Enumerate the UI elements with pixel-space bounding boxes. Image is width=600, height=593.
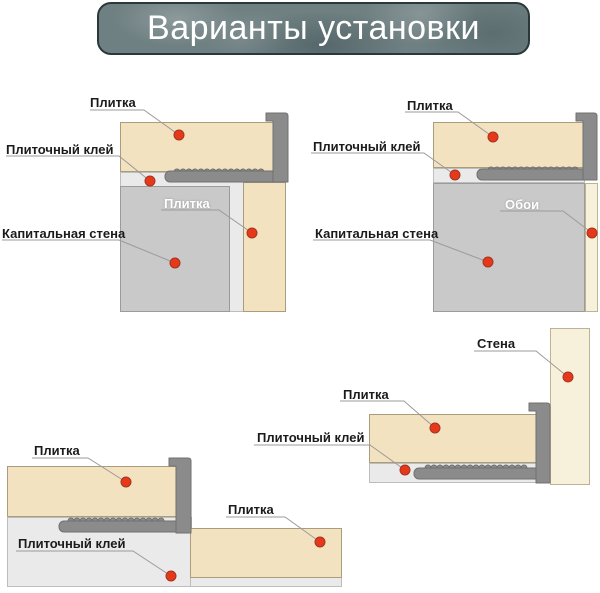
d4-wall-layer bbox=[550, 328, 590, 485]
d1-label-wall: Капитальная стена bbox=[2, 226, 125, 241]
d4-label-tile: Плитка bbox=[343, 387, 389, 402]
d4-trim-profile bbox=[413, 402, 551, 484]
d3-trim-profile bbox=[58, 457, 193, 534]
d2-label-adhesive: Плиточный клей bbox=[313, 139, 421, 154]
d1-trim-profile bbox=[164, 112, 290, 184]
d4-label-adhesive: Плиточный клей bbox=[257, 430, 365, 445]
page-title: Варианты установки bbox=[147, 9, 480, 48]
title-banner: Варианты установки bbox=[97, 2, 530, 55]
d3-right-tile-layer bbox=[190, 528, 342, 578]
d1-profile-base bbox=[165, 171, 287, 182]
d2-label-wall: Капитальная стена bbox=[315, 226, 438, 241]
d4-label-wall: Стена bbox=[477, 336, 515, 351]
d2-label-wallpaper: Обои bbox=[505, 197, 539, 212]
d4-profile-base bbox=[414, 468, 549, 479]
d3-label-tile-right: Плитка bbox=[228, 502, 274, 517]
d3-label-adhesive: Плиточный клей bbox=[18, 536, 126, 551]
d1-label-adhesive: Плиточный клей bbox=[6, 142, 114, 157]
d2-label-tile-top: Плитка bbox=[407, 98, 453, 113]
d1-label-tile-side: Плитка bbox=[164, 196, 210, 211]
d2-profile-base bbox=[477, 169, 597, 180]
d3-label-tile-top: Плитка bbox=[34, 443, 80, 458]
installation-options-diagram: Варианты установки bbox=[0, 0, 600, 593]
d1-side-tile-layer bbox=[243, 182, 286, 312]
d3-profile-base bbox=[59, 521, 191, 532]
d1-label-tile-top: Плитка bbox=[90, 95, 136, 110]
d2-trim-profile bbox=[476, 112, 598, 183]
d2-wallpaper-layer bbox=[585, 183, 598, 312]
